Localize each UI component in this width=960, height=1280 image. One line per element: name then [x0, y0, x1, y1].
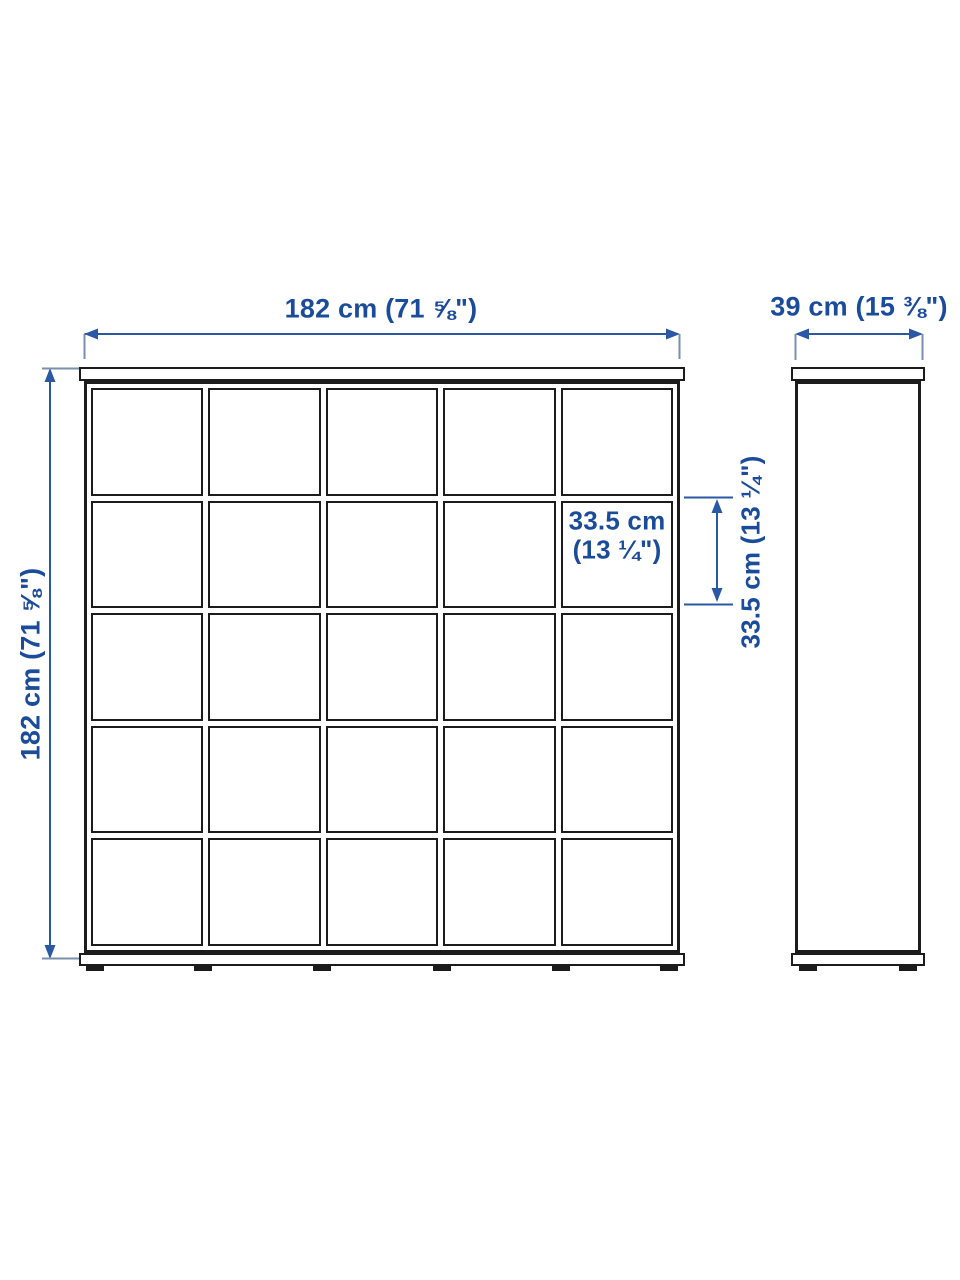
shelf-compartment	[91, 501, 203, 609]
shelf-compartment	[208, 501, 320, 609]
cell-width-label-line2: (13 ¼")	[573, 535, 662, 566]
shelf-compartment	[443, 726, 555, 834]
shelf-compartment	[208, 838, 320, 946]
shelf-compartment	[561, 838, 673, 946]
front-foot	[194, 966, 212, 971]
front-frame	[84, 381, 680, 953]
front-width-label: 182 cm (71 ⅝")	[285, 294, 478, 325]
side-depth-label: 39 cm (15 ⅜")	[770, 292, 948, 323]
side-foot	[799, 966, 817, 971]
shelf-compartment	[561, 388, 673, 496]
shelf-compartment	[326, 726, 438, 834]
shelf-dimension-diagram: 182 cm (71 ⅝") 182 cm (71 ⅝") 39 cm (15 …	[0, 0, 960, 1280]
cell-height-label: 33.5 cm (13 ¼")	[736, 455, 767, 648]
side-depth-dimension-arrow	[795, 329, 923, 361]
front-base-panel	[79, 953, 685, 966]
shelf-compartment	[326, 388, 438, 496]
side-frame	[795, 381, 921, 953]
shelf-compartment	[561, 726, 673, 834]
front-foot	[86, 966, 104, 971]
front-foot	[433, 966, 451, 971]
shelf-compartment	[91, 613, 203, 721]
shelf-compartment	[208, 388, 320, 496]
front-height-label: 182 cm (71 ⅝")	[16, 568, 47, 761]
shelf-compartment	[91, 726, 203, 834]
side-base-panel	[791, 953, 925, 966]
front-foot	[660, 966, 678, 971]
side-foot	[899, 966, 917, 971]
front-foot	[313, 966, 331, 971]
side-top-panel	[791, 367, 925, 381]
shelf-compartment	[561, 613, 673, 721]
shelf-compartment	[208, 613, 320, 721]
shelf-compartment	[443, 613, 555, 721]
front-grid	[91, 388, 673, 946]
shelf-compartment	[326, 613, 438, 721]
shelf-compartment	[443, 388, 555, 496]
shelf-compartment	[443, 838, 555, 946]
shelf-compartment	[326, 838, 438, 946]
front-height-dimension-arrow	[42, 368, 79, 959]
front-top-panel	[79, 367, 685, 381]
shelf-compartment	[91, 838, 203, 946]
shelf-compartment	[91, 388, 203, 496]
shelf-compartment	[326, 501, 438, 609]
front-width-dimension-arrow	[84, 329, 680, 360]
shelf-compartment	[443, 501, 555, 609]
cell-height-dimension-arrow	[684, 498, 733, 605]
front-foot	[552, 966, 570, 971]
shelf-compartment	[208, 726, 320, 834]
cell-width-label-line1: 33.5 cm	[569, 506, 666, 537]
